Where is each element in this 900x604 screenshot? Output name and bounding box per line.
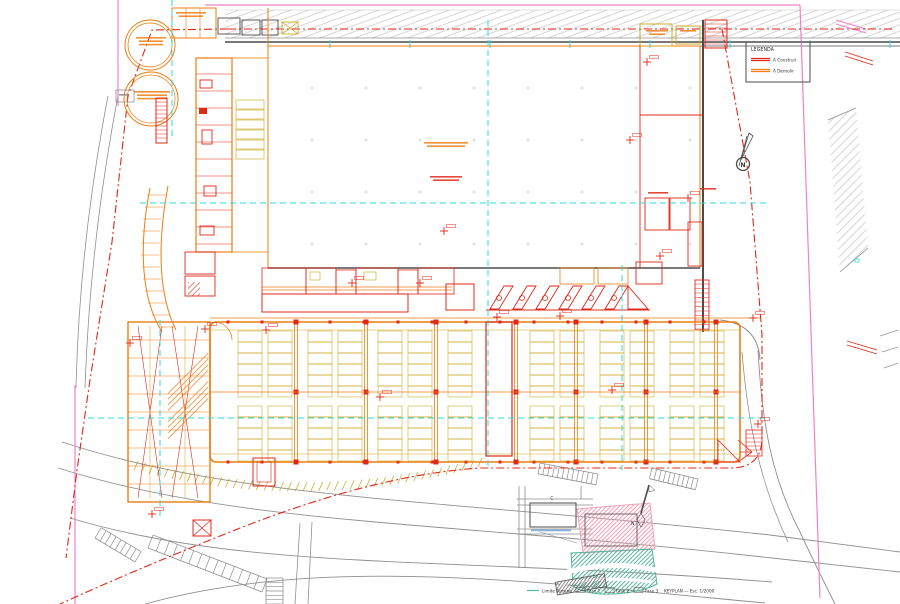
drawing-element — [185, 252, 215, 274]
parking-bay — [448, 353, 472, 364]
level-marker — [663, 250, 672, 253]
parking-bay — [448, 331, 472, 342]
parking-bay — [630, 450, 654, 461]
parking-bay — [560, 439, 584, 450]
parking-bay — [378, 386, 402, 397]
ladder-rung — [105, 534, 111, 544]
parking-bay — [700, 428, 724, 439]
parking-bay — [700, 417, 724, 428]
road-edge — [58, 468, 900, 572]
parking-bay — [378, 428, 402, 439]
rooms-strip — [196, 58, 232, 252]
legend-item-demolir: A Demolir — [773, 69, 794, 74]
road-edge — [758, 350, 835, 604]
parking-bay — [338, 386, 362, 397]
column — [295, 461, 298, 464]
drawing-element — [200, 226, 214, 235]
parking-bay — [408, 417, 432, 428]
column — [329, 321, 332, 324]
canopy — [262, 294, 408, 312]
ladder-rung — [654, 469, 657, 480]
boundary-segment — [847, 341, 877, 354]
corner-hatch — [718, 440, 740, 462]
ladder-rung — [686, 477, 689, 488]
parking-bay — [378, 342, 402, 353]
parking-bay — [600, 439, 624, 450]
legend-item-construir: A Construir — [773, 58, 797, 63]
column — [363, 321, 366, 324]
parking-bay — [630, 428, 654, 439]
parking-bay — [530, 450, 554, 461]
parking-bay — [308, 428, 332, 439]
ladder-rung — [229, 566, 234, 579]
parking-bay — [600, 450, 624, 461]
parking-bay — [268, 428, 292, 439]
parking-bay — [670, 450, 694, 461]
parking-bay — [700, 353, 724, 364]
parking-bay — [408, 375, 432, 386]
ladder-rung — [254, 576, 259, 589]
kerb-hatch — [382, 477, 386, 486]
parking-bay — [448, 386, 472, 397]
column — [261, 321, 264, 324]
right-wing-building — [640, 20, 727, 330]
parking-bay — [670, 353, 694, 364]
ladder-rung — [695, 479, 698, 490]
ladder-rung — [577, 470, 579, 481]
parking-bay — [268, 439, 292, 450]
parking-bay — [238, 450, 262, 461]
column — [295, 321, 298, 324]
ladder-rung — [663, 471, 666, 482]
drawing-element — [204, 186, 216, 196]
ladder-rung — [100, 531, 106, 541]
parking-bay — [530, 428, 554, 439]
drawing-element — [236, 120, 264, 129]
parking-bay — [670, 406, 694, 417]
keyplan-north-label: N — [631, 521, 634, 527]
parking-bay — [378, 439, 402, 450]
text-blur — [176, 12, 206, 14]
ladder-rung — [677, 475, 680, 486]
parking-bay — [308, 417, 332, 428]
ladder-rung — [172, 544, 177, 557]
parking-bay — [630, 406, 654, 417]
parking-bay — [338, 375, 362, 386]
parking-bay — [670, 417, 694, 428]
parking-bay — [308, 353, 332, 364]
parking-bay — [448, 450, 472, 461]
caption-limite-terreno: Limite Terreno — [542, 589, 572, 594]
parking-bay — [560, 353, 584, 364]
caption-fase-1: Fase 1 — [587, 589, 601, 594]
parking-bay — [630, 353, 654, 364]
text-blur — [427, 145, 465, 147]
keyplan-fase3-area — [577, 503, 655, 553]
text-blur — [648, 192, 668, 194]
kerb-hatch — [334, 481, 338, 490]
parking-bay — [448, 417, 472, 428]
parking-bay — [338, 331, 362, 342]
text-blur — [531, 530, 571, 532]
parking-bay — [670, 331, 694, 342]
keyplan-block-label: C — [550, 496, 554, 502]
dock-glyph — [497, 296, 502, 301]
parking-bay — [238, 428, 262, 439]
parking-bay — [700, 386, 724, 397]
column — [465, 321, 468, 324]
side-street — [295, 522, 312, 604]
ladder-rung — [659, 470, 662, 481]
caption-fase-2: Fase 2 — [616, 589, 630, 594]
parking-bay — [338, 406, 362, 417]
column — [514, 320, 519, 325]
ladder-rung — [572, 469, 574, 480]
parking-bay — [268, 386, 292, 397]
parking-bay — [670, 439, 694, 450]
parking-bay — [560, 331, 584, 342]
parking-bay — [338, 428, 362, 439]
ladder-rung — [649, 468, 652, 479]
parking-bay — [308, 450, 332, 461]
parking-bay — [448, 428, 472, 439]
parking-bay — [700, 450, 724, 461]
parking-bay — [600, 331, 624, 342]
ladder-rung — [125, 546, 131, 556]
drawing-element — [236, 130, 264, 139]
ladder-rung — [591, 473, 593, 484]
drawing-element — [236, 140, 264, 149]
parking-bay — [530, 386, 554, 397]
corridor-strip — [232, 58, 268, 252]
text-blur — [137, 94, 167, 96]
ladder-rung — [205, 557, 210, 570]
parking-bay — [600, 364, 624, 375]
ladder-rung — [130, 549, 136, 559]
parking-bay — [268, 417, 292, 428]
embankment-hatch — [225, 10, 900, 38]
column — [227, 321, 230, 324]
parking-bay — [408, 331, 432, 342]
column — [397, 321, 400, 324]
kerb-hatch — [446, 466, 450, 475]
ladder-rung — [120, 543, 126, 553]
ladder-rung — [213, 560, 218, 573]
kerb-hatch — [280, 482, 284, 491]
parking-bay — [530, 364, 554, 375]
kerb-hatch — [319, 482, 323, 491]
column — [431, 321, 434, 324]
parking-bay — [600, 417, 624, 428]
parking-bay — [530, 406, 554, 417]
roads — [58, 96, 900, 604]
ladder-rung — [586, 472, 588, 483]
room-fill — [199, 108, 207, 114]
parking-bay — [238, 364, 262, 375]
drawing-element — [193, 520, 211, 536]
parking-bay — [670, 364, 694, 375]
caption-fase-3: Fase 3 — [645, 589, 659, 594]
dock-glyph — [566, 296, 571, 301]
level-marker — [500, 311, 509, 314]
parking-bay — [408, 450, 432, 461]
centerlines — [88, 0, 770, 520]
level-marker — [155, 508, 164, 511]
parking-bay — [448, 375, 472, 386]
parking-bay — [308, 375, 332, 386]
column — [574, 320, 579, 325]
parking-bay — [408, 353, 432, 364]
kerb-hatch — [233, 479, 237, 488]
drawing-element — [598, 268, 628, 284]
text-blur — [179, 15, 203, 17]
level-marker — [269, 324, 278, 327]
parking-bay — [530, 417, 554, 428]
parking-bay — [700, 375, 724, 386]
parking-bay — [560, 342, 584, 353]
parking-bay — [408, 386, 432, 397]
ladder-rung — [562, 468, 564, 479]
text-blur — [136, 37, 166, 39]
ladder-rung — [164, 541, 169, 554]
kerb-hatch — [414, 472, 418, 481]
parking-bay — [268, 342, 292, 353]
north-arrow-label: N — [740, 162, 745, 169]
road-edge — [742, 352, 788, 542]
parking-bay — [670, 428, 694, 439]
ladder-rung — [682, 476, 685, 487]
storage-tanks — [116, 20, 178, 143]
column — [567, 321, 570, 324]
drawing-element — [560, 268, 594, 284]
dock-box — [446, 284, 474, 310]
boundary-segment — [845, 52, 873, 65]
keyplan-fase1-area — [530, 503, 576, 527]
ladder-rung — [95, 528, 101, 538]
drawing-element — [236, 150, 264, 159]
parking-deck — [128, 320, 762, 537]
text-blur — [646, 30, 668, 32]
parking-bay — [268, 331, 292, 342]
parking-bay — [408, 406, 432, 417]
kerb-hatch — [225, 478, 229, 487]
parking-bay — [378, 417, 402, 428]
parking-bay — [670, 342, 694, 353]
parking-bay — [268, 406, 292, 417]
ladder-rung — [552, 466, 554, 477]
level-marker — [650, 56, 659, 59]
parking-bay — [560, 406, 584, 417]
parking-bay — [600, 428, 624, 439]
kerb-hatch — [311, 482, 315, 491]
column — [574, 460, 579, 465]
parking-bay — [408, 342, 432, 353]
parking-bay — [378, 331, 402, 342]
dock-end — [628, 286, 648, 309]
parking-bay — [600, 342, 624, 353]
text-blur — [424, 142, 468, 144]
column — [644, 320, 649, 325]
parking-bay — [338, 353, 362, 364]
site-plan: N LEGENDA A Construir A Demolir C N Limi… — [0, 0, 900, 604]
text-blur — [680, 30, 696, 32]
parking-bay — [308, 439, 332, 450]
column — [363, 461, 366, 464]
parking-bay — [530, 375, 554, 386]
text-blur — [700, 188, 716, 190]
parking-bay — [630, 417, 654, 428]
parking-bay — [268, 364, 292, 375]
text-blur — [139, 44, 163, 46]
parking-bay — [238, 331, 262, 342]
ladder-rung — [181, 548, 186, 561]
column — [499, 461, 502, 464]
parking-bay — [560, 450, 584, 461]
parking-bay — [700, 342, 724, 353]
kerb-hatch — [454, 464, 458, 473]
dock-glyph — [520, 296, 525, 301]
dock-glyph — [612, 296, 617, 301]
parking-bay — [238, 342, 262, 353]
parking-bay — [338, 417, 362, 428]
parking-bay — [560, 364, 584, 375]
parking-bay — [670, 386, 694, 397]
legend-title: LEGENDA — [751, 47, 775, 53]
column — [703, 321, 706, 324]
caption-keyplan-scale: KEYPLAN — Esc. 1/2000 — [664, 589, 715, 594]
drawing-element — [364, 272, 376, 280]
column — [514, 460, 519, 465]
ladder-rung — [135, 552, 141, 562]
parking-bay — [378, 450, 402, 461]
parking-bay — [448, 342, 472, 353]
parking-bay — [238, 353, 262, 364]
road-edge — [62, 442, 900, 552]
parking-bay — [560, 386, 584, 397]
column — [601, 321, 604, 324]
parking-bay — [238, 406, 262, 417]
parking-bay — [530, 439, 554, 450]
dock-glyph — [543, 296, 548, 301]
parking-bay — [700, 364, 724, 375]
parking-bay — [530, 331, 554, 342]
ramp-edge — [161, 186, 176, 330]
column — [434, 460, 439, 465]
parking-bay — [338, 342, 362, 353]
ladder-rung — [110, 537, 116, 547]
parking-bay — [238, 417, 262, 428]
parking-bay — [378, 375, 402, 386]
level-marker — [423, 277, 432, 280]
text-blur — [433, 179, 459, 181]
left-wing-building — [141, 8, 298, 332]
parking-bay — [560, 417, 584, 428]
ladder-rung — [543, 464, 545, 475]
parking-bay — [238, 439, 262, 450]
ladder-rung — [221, 563, 226, 576]
parking-bay — [448, 406, 472, 417]
column — [635, 321, 638, 324]
site-limit — [800, 5, 820, 598]
parking-bay — [308, 342, 332, 353]
drawing-element — [188, 282, 200, 296]
parking-bay — [670, 375, 694, 386]
ladder-rung — [691, 478, 694, 489]
contour-marks — [880, 330, 898, 368]
parking-bay — [408, 364, 432, 375]
parking-bay — [338, 439, 362, 450]
ladder-rung — [156, 538, 161, 551]
ladder-rung — [189, 551, 194, 564]
ramp — [486, 322, 512, 456]
level-marker — [133, 337, 142, 340]
parking-bay — [408, 428, 432, 439]
parking-bay — [308, 406, 332, 417]
parking-bay — [630, 342, 654, 353]
ladder-rung — [238, 570, 243, 583]
parking-bay — [338, 364, 362, 375]
drawing-element — [236, 110, 264, 119]
text-blur — [430, 176, 462, 178]
ladder-rung — [581, 471, 583, 482]
ladder-rung — [115, 540, 121, 550]
parking-bay — [700, 406, 724, 417]
parking-bay — [268, 450, 292, 461]
parking-bay — [600, 406, 624, 417]
parking-bay — [560, 375, 584, 386]
dock-glyph — [589, 296, 594, 301]
keyplan — [517, 485, 657, 595]
drawing-element — [257, 462, 271, 482]
ladder-rung — [668, 472, 671, 483]
kerb-hatch — [374, 478, 378, 487]
kerb-hatch — [249, 480, 253, 489]
column — [434, 320, 439, 325]
kerb-hatch — [358, 479, 362, 488]
parking-bay — [630, 375, 654, 386]
kerb-hatch — [287, 482, 291, 491]
ladder-rung — [557, 467, 559, 478]
survey-mark — [855, 259, 859, 262]
slope-hatch-area — [828, 52, 898, 368]
text-blur — [649, 33, 665, 35]
kerb-hatch — [342, 481, 346, 490]
drawing-element — [236, 100, 264, 109]
level-marker — [447, 225, 456, 228]
parking-bay — [408, 439, 432, 450]
parking-bay — [308, 364, 332, 375]
parking-bay — [238, 375, 262, 386]
parking-bay — [448, 439, 472, 450]
ladder-rung — [548, 465, 550, 476]
ramp-edge — [143, 188, 162, 332]
parking-bay — [238, 386, 262, 397]
text-blur — [119, 94, 129, 96]
ladder-rung — [672, 474, 675, 485]
kerb-hatch — [241, 480, 245, 489]
keyplan-north-flag — [649, 485, 655, 492]
kerb-hatch — [350, 480, 354, 489]
site-boundary-lines — [60, 0, 892, 604]
column — [644, 460, 649, 465]
parking-bay — [448, 364, 472, 375]
drawing-element — [200, 80, 212, 88]
mid-band-rooms-docks — [210, 262, 760, 318]
parking-bay — [700, 331, 724, 342]
slope-hatch — [828, 108, 868, 272]
parking-bay — [530, 342, 554, 353]
ladder-rung — [567, 469, 569, 480]
